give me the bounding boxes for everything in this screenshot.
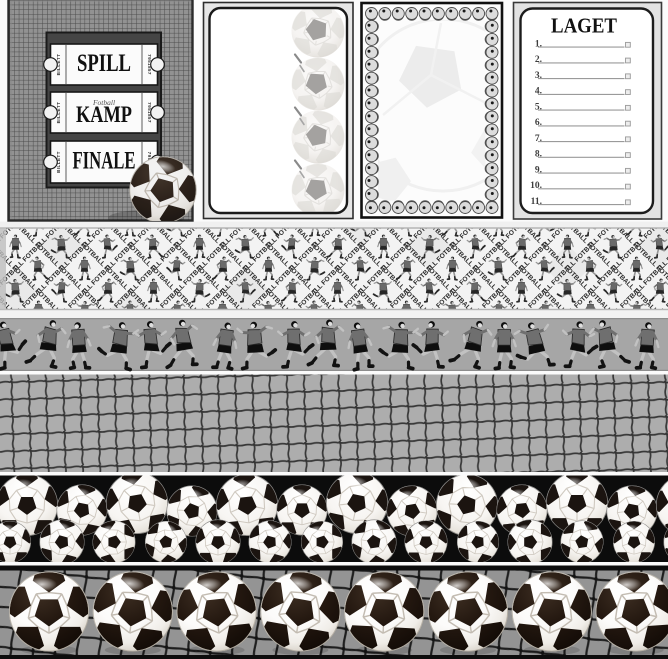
svg-text:1.: 1. [535,39,542,49]
svg-text:5.: 5. [535,102,542,112]
svg-text:3.: 3. [535,71,542,81]
svg-text:4.: 4. [535,87,542,97]
svg-text:11.: 11. [531,197,542,207]
svg-text:LAGET: LAGET [551,14,617,38]
svg-text:7.: 7. [535,134,542,144]
svg-text:BILLETT: BILLETT [56,102,61,124]
svg-text:7951857: 7951857 [147,54,152,75]
svg-text:6.: 6. [535,118,542,128]
svg-text:BILLETT: BILLETT [56,151,61,173]
svg-text:10.: 10. [530,181,542,191]
svg-text:KAMP: KAMP [76,102,132,127]
svg-text:BILLETT: BILLETT [56,54,61,76]
svg-text:8.: 8. [535,150,542,160]
svg-text:9.: 9. [535,165,542,175]
svg-text:7951857: 7951857 [147,102,152,123]
svg-text:SPILL: SPILL [77,50,131,77]
svg-text:FINALE: FINALE [73,148,136,175]
svg-text:2.: 2. [535,55,542,65]
